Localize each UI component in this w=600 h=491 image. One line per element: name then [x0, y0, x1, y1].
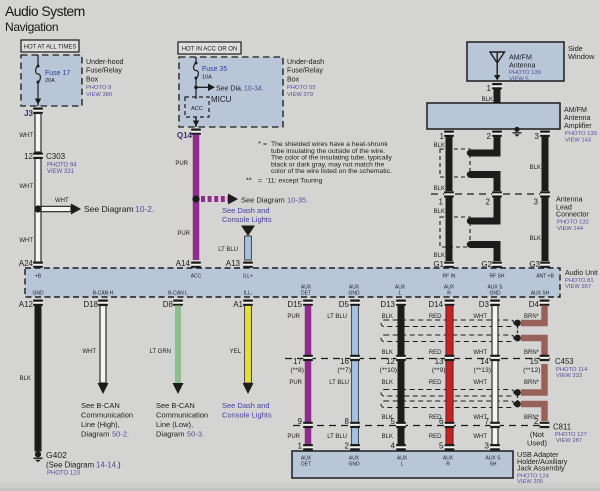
svg-text:Fuse/Relay: Fuse/Relay	[287, 67, 323, 75]
svg-text:BLK: BLK	[530, 236, 541, 242]
svg-text:R: R	[446, 462, 450, 468]
svg-text:AUX SH: AUX SH	[531, 291, 550, 297]
svg-text:50-2.: 50-2.	[112, 430, 129, 439]
svg-text:See Diagram: See Diagram	[84, 204, 134, 214]
svg-text:5: 5	[391, 417, 396, 426]
svg-text:PUR: PUR	[289, 380, 302, 386]
svg-text:RED: RED	[429, 314, 442, 320]
svg-text:VIEW 287: VIEW 287	[556, 438, 582, 444]
svg-text:RED: RED	[429, 350, 442, 356]
svg-text:14: 14	[480, 357, 489, 366]
svg-text:5: 5	[439, 442, 444, 451]
svg-text:VIEW 379: VIEW 379	[287, 92, 313, 98]
svg-text:7: 7	[485, 417, 490, 426]
svg-text:Line (Low),: Line (Low),	[156, 420, 193, 429]
svg-text:ACC: ACC	[191, 106, 203, 112]
svg-text:L: L	[401, 462, 404, 468]
svg-text:Window: Window	[568, 52, 595, 61]
svg-text:1: 1	[440, 132, 445, 141]
svg-text:(**12): (**12)	[523, 367, 540, 374]
svg-text:*: *	[258, 139, 261, 148]
svg-text:10A: 10A	[202, 75, 212, 81]
svg-text:PHOTO 139: PHOTO 139	[565, 131, 597, 137]
svg-text:WHT: WHT	[55, 198, 69, 204]
svg-text:VIEW 357: VIEW 357	[565, 284, 591, 290]
svg-text:C811: C811	[553, 423, 571, 432]
svg-text:ILL-: ILL-	[244, 291, 253, 297]
svg-text:BRN*: BRN*	[524, 314, 540, 320]
svg-text:(**8): (**8)	[290, 367, 304, 374]
svg-text:PUR: PUR	[177, 231, 190, 237]
svg-text:D5: D5	[339, 300, 350, 309]
svg-text:B-CAN L: B-CAN L	[168, 291, 188, 297]
svg-text:BLK: BLK	[434, 209, 445, 215]
svg-text:WHT: WHT	[473, 434, 487, 440]
svg-text:Line (High),: Line (High),	[81, 420, 120, 429]
svg-text:D13: D13	[380, 300, 395, 309]
svg-text:VIEW 333: VIEW 333	[556, 373, 582, 379]
svg-text:D15: D15	[287, 300, 302, 309]
svg-text:RF SH: RF SH	[490, 274, 505, 280]
svg-text:D8: D8	[163, 300, 174, 309]
svg-text:PUR: PUR	[175, 161, 188, 167]
svg-text:13: 13	[435, 357, 444, 366]
svg-text:Fuse 35: Fuse 35	[202, 66, 227, 73]
svg-text:SH: SH	[490, 462, 497, 468]
svg-text:Box: Box	[86, 75, 99, 83]
svg-text:D3: D3	[479, 300, 490, 309]
svg-text:Under-dash: Under-dash	[287, 58, 324, 66]
svg-text:Diagram: Diagram	[81, 430, 109, 439]
svg-text:Q14: Q14	[177, 131, 193, 140]
svg-text:WHT: WHT	[19, 184, 33, 190]
svg-text:Antenna: Antenna	[509, 61, 535, 69]
svg-text:(**7): (**7)	[337, 367, 351, 374]
svg-text:BLK: BLK	[382, 434, 393, 440]
svg-text:VIEW 331: VIEW 331	[47, 169, 75, 175]
svg-text:Navigation: Navigation	[5, 20, 58, 34]
svg-text:AM/FM: AM/FM	[564, 106, 587, 114]
svg-text:C453: C453	[555, 357, 574, 366]
svg-text:2: 2	[345, 442, 350, 451]
svg-text:ACC: ACC	[191, 274, 202, 280]
svg-text:’11: except Touring: ’11: except Touring	[266, 178, 323, 185]
svg-text:9: 9	[298, 417, 303, 426]
svg-text:3: 3	[534, 198, 539, 207]
svg-text:8: 8	[345, 417, 350, 426]
svg-text:+B: +B	[35, 274, 42, 280]
svg-text:BLK: BLK	[434, 143, 445, 149]
svg-text:GND: GND	[348, 291, 360, 297]
svg-text:10-34.: 10-34.	[244, 86, 264, 93]
svg-text:1: 1	[487, 84, 492, 93]
svg-text:WHT: WHT	[19, 133, 33, 139]
svg-text:WHT: WHT	[473, 380, 487, 386]
svg-text:color of the wire listed on th: color of the wire listed on the schemati…	[271, 168, 392, 175]
svg-text:See Dash and: See Dash and	[222, 401, 270, 410]
svg-text:WHT: WHT	[473, 314, 487, 320]
svg-text:AM/FM: AM/FM	[509, 54, 532, 62]
svg-text:15: 15	[530, 357, 539, 366]
svg-text:Fuse/Relay: Fuse/Relay	[86, 67, 122, 75]
svg-text:6: 6	[439, 417, 444, 426]
svg-text:G402: G402	[46, 450, 67, 460]
svg-text:Used): Used)	[527, 439, 548, 448]
svg-text:4: 4	[391, 442, 396, 451]
svg-text:A1: A1	[233, 300, 243, 309]
svg-text:BLK: BLK	[434, 253, 445, 259]
svg-text:2: 2	[487, 132, 492, 141]
svg-text:D14: D14	[428, 300, 443, 309]
svg-text:A13: A13	[226, 259, 241, 268]
svg-text:DET: DET	[301, 462, 311, 468]
svg-text:(**9): (**9)	[432, 367, 446, 374]
svg-text:VIEW 380: VIEW 380	[86, 92, 112, 98]
svg-text:Communication: Communication	[156, 411, 208, 420]
svg-text:A24: A24	[19, 259, 34, 268]
svg-text:LT BLU: LT BLU	[327, 434, 347, 440]
svg-text:2: 2	[486, 198, 491, 207]
svg-text:See B-CAN: See B-CAN	[81, 401, 120, 410]
svg-text:LT BLU: LT BLU	[327, 314, 347, 320]
svg-text:Fuse 17: Fuse 17	[45, 70, 70, 77]
svg-text:10-35.: 10-35.	[287, 196, 308, 205]
svg-text:GND: GND	[348, 462, 360, 468]
svg-text:YEL: YEL	[230, 349, 242, 355]
svg-text:(**10): (**10)	[380, 367, 397, 374]
svg-text:HOT IN ACC OR ON: HOT IN ACC OR ON	[182, 47, 238, 53]
svg-text:12: 12	[386, 357, 395, 366]
svg-text:1: 1	[298, 442, 303, 451]
svg-text:17: 17	[293, 357, 302, 366]
svg-text:Diagram: Diagram	[156, 430, 184, 439]
svg-text:Box: Box	[287, 75, 300, 83]
svg-text:D18: D18	[83, 300, 98, 309]
svg-text:12: 12	[24, 152, 33, 161]
svg-text:Console Lights: Console Lights	[222, 411, 272, 420]
svg-text:1: 1	[439, 198, 444, 207]
svg-text:BLK: BLK	[382, 380, 393, 386]
svg-text:LT BLU: LT BLU	[218, 247, 238, 253]
svg-text:B-CAN H: B-CAN H	[93, 291, 114, 297]
svg-text:Jack Assembly: Jack Assembly	[517, 464, 565, 473]
svg-text:PHOTO 123: PHOTO 123	[47, 471, 81, 477]
svg-text:(**13): (**13)	[474, 367, 491, 374]
svg-text:BLK: BLK	[434, 186, 445, 192]
svg-text:**: **	[246, 176, 252, 185]
svg-text:2: 2	[534, 417, 539, 426]
svg-text:Antenna: Antenna	[556, 196, 582, 204]
svg-text:PHOTO 55: PHOTO 55	[287, 85, 316, 91]
svg-text:R: R	[447, 291, 451, 297]
svg-text:VIEW 143: VIEW 143	[565, 137, 591, 143]
svg-text:BRN*: BRN*	[524, 380, 540, 386]
svg-text:VIEW 5: VIEW 5	[509, 76, 529, 82]
svg-text:Connector: Connector	[556, 211, 589, 219]
svg-text:Console Lights: Console Lights	[222, 215, 272, 224]
svg-text:MICU: MICU	[211, 95, 232, 104]
svg-text:=: =	[263, 141, 267, 148]
svg-text:Communication: Communication	[81, 411, 133, 420]
svg-text:RED: RED	[429, 434, 442, 440]
svg-text:3: 3	[535, 132, 540, 141]
svg-text:Under-hood: Under-hood	[86, 58, 124, 66]
svg-text:BRN*: BRN*	[524, 350, 540, 356]
svg-text:See Diagram: See Diagram	[241, 196, 285, 205]
svg-text:L: L	[399, 291, 402, 297]
svg-text:PHOTO 114: PHOTO 114	[556, 367, 588, 373]
svg-text:10-2.: 10-2.	[135, 204, 154, 214]
svg-text:See Dia.: See Dia.	[216, 86, 243, 93]
svg-text:ILL+: ILL+	[243, 274, 253, 280]
svg-text:J3: J3	[24, 109, 33, 118]
svg-text:3: 3	[485, 442, 490, 451]
svg-text:PHOTO 94: PHOTO 94	[47, 163, 77, 169]
svg-text:PUR: PUR	[287, 314, 300, 320]
svg-text:A14: A14	[176, 259, 191, 268]
svg-text:Antenna: Antenna	[564, 114, 590, 122]
svg-text:RF IN: RF IN	[442, 274, 455, 280]
svg-text:C303: C303	[46, 152, 66, 161]
svg-text:BLK: BLK	[382, 350, 393, 356]
svg-text:PHOTO 132: PHOTO 132	[557, 220, 589, 226]
svg-text:BLK: BLK	[530, 165, 541, 171]
svg-text:D4: D4	[529, 300, 540, 309]
svg-text:PHOTO 9: PHOTO 9	[86, 85, 111, 91]
svg-text:LT GRN: LT GRN	[150, 349, 171, 355]
svg-text:WHT: WHT	[19, 238, 33, 244]
svg-text:=: =	[258, 178, 262, 185]
svg-text:A12: A12	[19, 300, 34, 309]
svg-text:PUR: PUR	[287, 434, 300, 440]
svg-text:14-14.: 14-14.	[96, 461, 118, 470]
svg-text:HOT AT ALL TIMES: HOT AT ALL TIMES	[24, 45, 77, 51]
svg-text:BLK: BLK	[482, 97, 493, 103]
svg-text:Amplifier: Amplifier	[564, 122, 592, 130]
svg-text:PHOTO 139: PHOTO 139	[509, 70, 541, 76]
svg-text:16: 16	[340, 357, 349, 366]
svg-text:See Dash and: See Dash and	[222, 206, 270, 215]
svg-text:WHT: WHT	[473, 350, 487, 356]
svg-text:BLK: BLK	[20, 376, 31, 382]
svg-text:ANT +B: ANT +B	[536, 274, 554, 280]
svg-text:VIEW 205: VIEW 205	[517, 479, 543, 485]
svg-text:50-3.: 50-3.	[187, 430, 204, 439]
svg-text:WHT: WHT	[82, 349, 96, 355]
svg-text:GND: GND	[489, 291, 501, 297]
svg-text:LT BLU: LT BLU	[329, 380, 349, 386]
svg-text:See B-CAN: See B-CAN	[156, 401, 195, 410]
svg-text:PHOTO 81: PHOTO 81	[565, 278, 594, 284]
svg-text:Audio System: Audio System	[5, 3, 85, 19]
svg-text:): )	[118, 461, 121, 470]
svg-text:DET: DET	[301, 291, 311, 297]
svg-text:RED: RED	[429, 380, 442, 386]
svg-text:20A: 20A	[45, 78, 55, 84]
svg-text:Audio Unit: Audio Unit	[565, 269, 598, 277]
svg-text:GND: GND	[32, 291, 44, 297]
svg-text:(See Diagram: (See Diagram	[46, 461, 94, 470]
svg-text:BLK: BLK	[382, 314, 393, 320]
svg-text:VIEW 144: VIEW 144	[557, 226, 584, 232]
